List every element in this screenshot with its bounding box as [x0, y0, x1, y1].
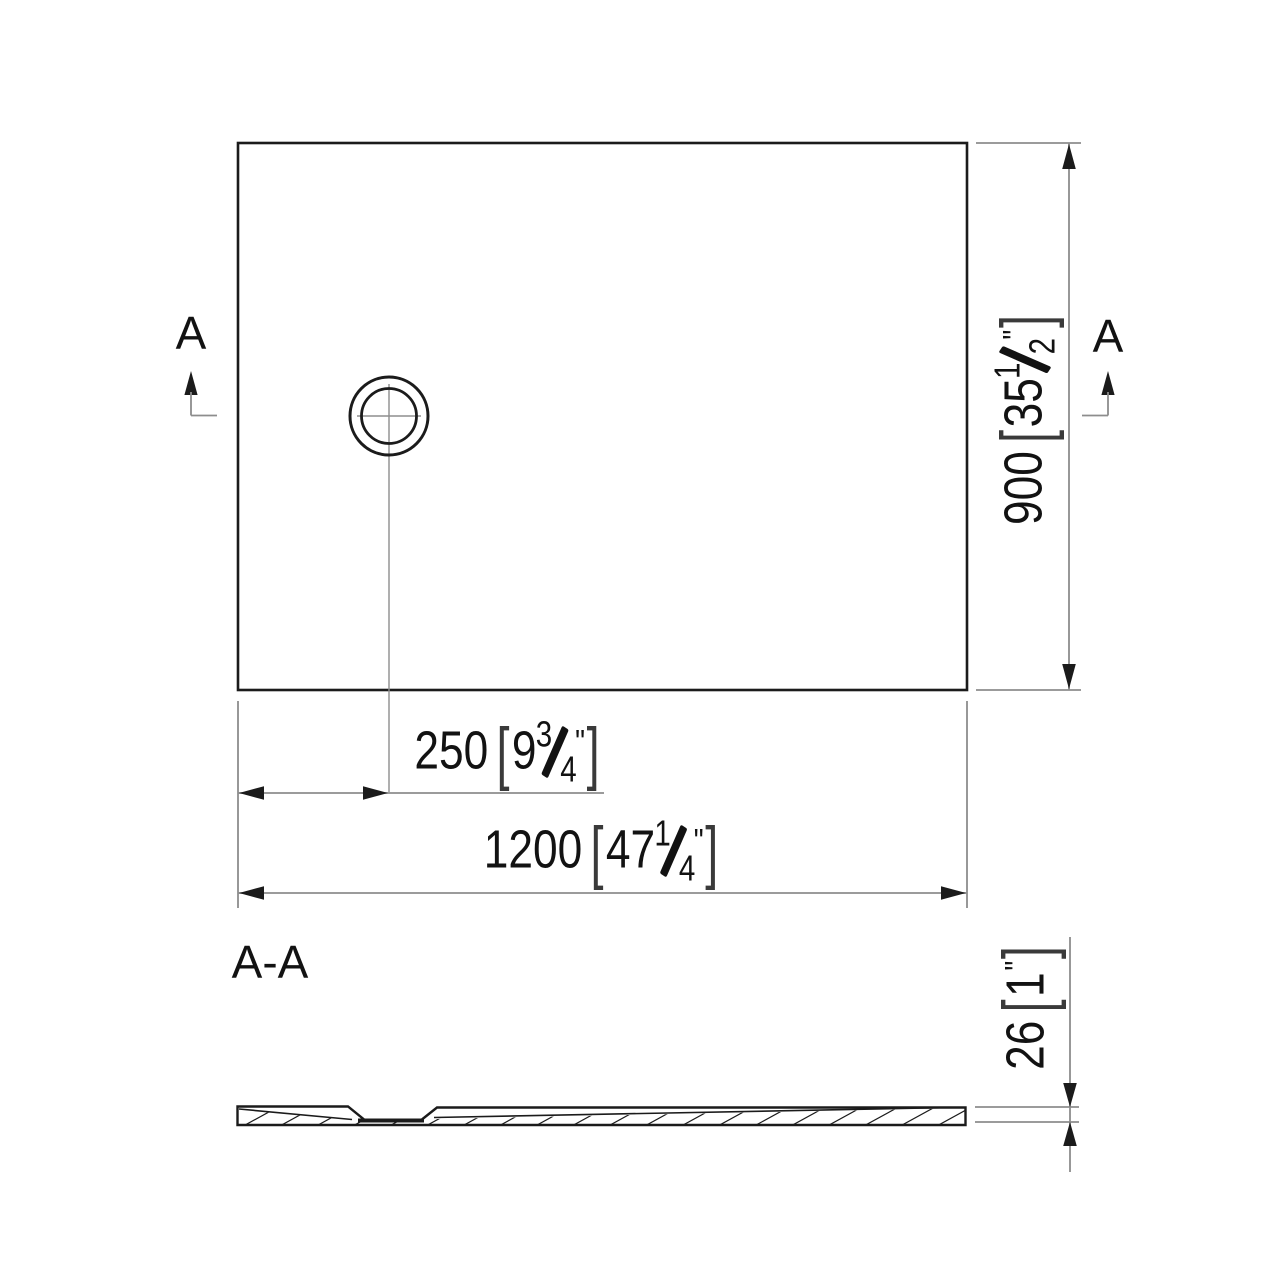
plan-view [238, 143, 967, 792]
arrowhead-left-icon [239, 786, 264, 800]
drawing-canvas [0, 0, 1280, 1280]
bracket-close: ] [992, 315, 1062, 328]
dimension-drain-offset-label: 250[934"] [414, 724, 599, 783]
section-view [205, 1104, 1014, 1127]
imperial-whole: 47 [606, 820, 655, 880]
dimension-thickness-label: 26[1"] [999, 946, 1058, 1070]
tray-outline [238, 143, 967, 690]
arrowhead-right-icon [941, 886, 966, 900]
inch-mark: " [575, 726, 584, 760]
cut-marker-right [1082, 371, 1115, 416]
metric-value: 900 [994, 451, 1054, 525]
technical-drawing-page: A A A-A 250[934"] 1200[4714"] 900[3512"]… [0, 0, 1280, 1280]
imperial-whole: 9 [512, 721, 537, 781]
cut-marker-label-right: A [1093, 313, 1124, 359]
metric-value: 1200 [484, 820, 583, 880]
fraction-numerator: 1 [654, 816, 670, 852]
arrowhead-down-icon [1063, 1083, 1077, 1107]
metric-value: 26 [996, 1021, 1056, 1070]
dimension-depth-label: 900[3512"] [997, 315, 1056, 525]
arrowhead-right-icon [363, 786, 388, 800]
bracket-open: [ [992, 430, 1062, 443]
cut-arrow-up-icon [184, 371, 197, 395]
cut-arrow-up-icon [1101, 371, 1114, 395]
bracket-close: ] [587, 719, 600, 789]
arrowhead-left-icon [239, 886, 264, 900]
arrowhead-up-icon [1063, 1122, 1077, 1146]
bracket-open: [ [994, 999, 1064, 1012]
inch-mark: " [1001, 962, 1035, 971]
fraction-numerator: 1 [990, 363, 1026, 379]
bracket-open: [ [590, 818, 603, 888]
fraction: 34 [537, 724, 573, 782]
fraction-denominator: 2 [1025, 338, 1061, 354]
fraction-numerator: 3 [536, 717, 552, 753]
metric-value: 250 [414, 721, 488, 781]
inch-mark: " [694, 825, 703, 859]
bracket-open: [ [496, 719, 509, 789]
dimension-drain-offset-250 [238, 786, 604, 800]
arrowhead-up-icon [1062, 144, 1076, 169]
fraction: 12 [997, 341, 1055, 377]
arrowhead-down-icon [1062, 664, 1076, 689]
bracket-close: ] [705, 818, 718, 888]
imperial-whole: 1 [996, 972, 1056, 997]
imperial-whole: 35 [994, 378, 1054, 427]
dimension-length-label: 1200[4714"] [484, 823, 719, 882]
cut-marker-left [184, 371, 217, 416]
inch-mark: " [999, 331, 1033, 340]
section-title: A-A [232, 939, 309, 985]
bracket-close: ] [994, 946, 1064, 959]
fraction: 14 [656, 823, 692, 881]
cut-marker-label-left: A [176, 310, 207, 356]
